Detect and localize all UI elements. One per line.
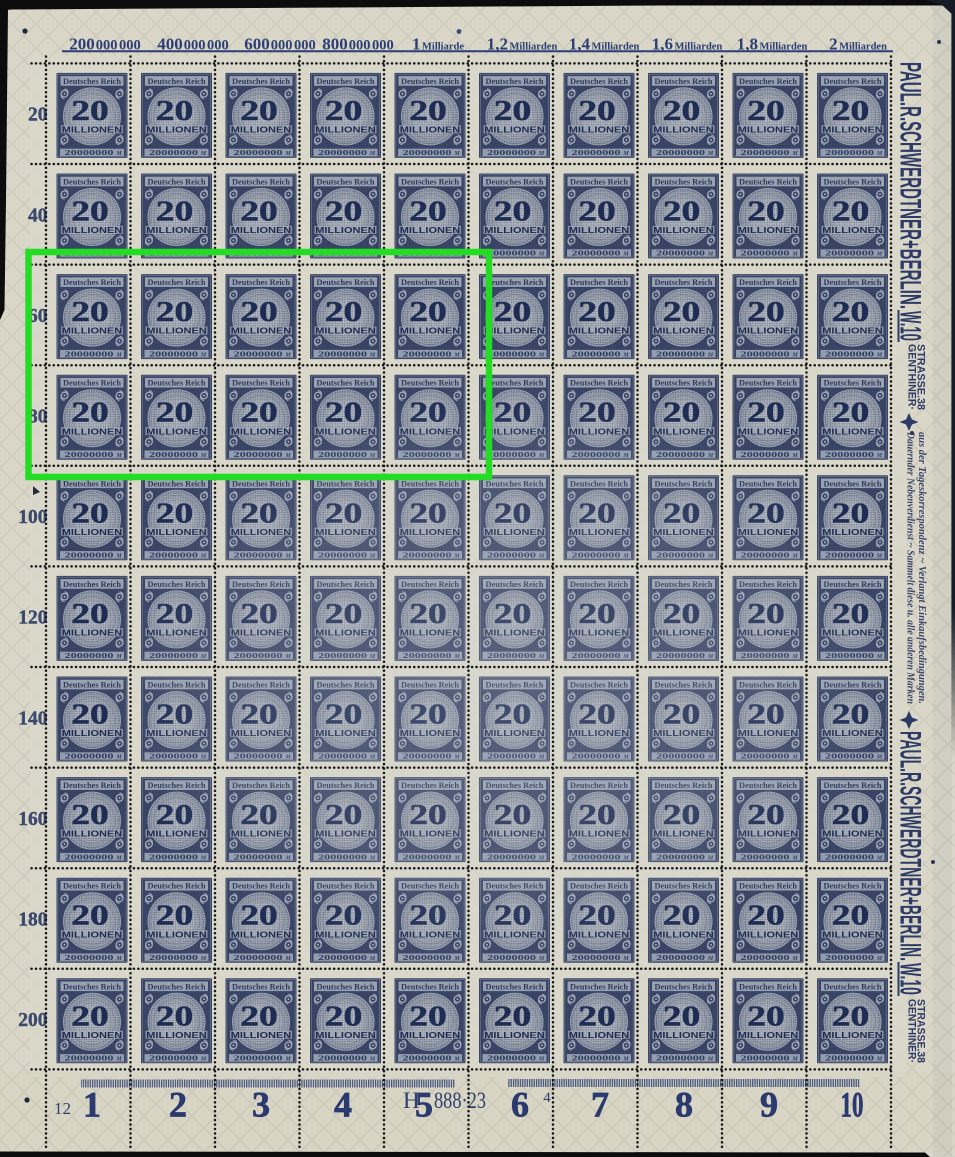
svg-text:12: 12	[54, 1099, 71, 1118]
svg-text:100: 100	[18, 507, 47, 528]
svg-text:20: 20	[28, 105, 48, 126]
svg-text:120: 120	[18, 608, 47, 629]
svg-text:6: 6	[511, 1085, 529, 1125]
svg-text:1: 1	[83, 1085, 101, 1125]
svg-text:H: H	[403, 1088, 420, 1113]
svg-text:STRASSE.38: STRASSE.38	[915, 344, 927, 410]
svg-text:160: 160	[18, 809, 47, 830]
svg-text:200: 200	[18, 1010, 47, 1031]
svg-text:aus der Tageskorrespondenz ~ V: aus der Tageskorrespondenz ~ Verlangt Ei…	[916, 432, 928, 704]
svg-text:180: 180	[18, 910, 47, 931]
svg-text:10: 10	[841, 1085, 864, 1125]
svg-text:Dauernder Nebenverdienst ~ Sam: Dauernder Nebenverdienst ~ Sammelt diese…	[905, 431, 917, 704]
svg-text:PAUL.R.SCHWERDTNER+BERLIN.: PAUL.R.SCHWERDTNER+BERLIN.	[894, 731, 927, 961]
svg-text:9: 9	[760, 1085, 778, 1125]
svg-text:888·23: 888·23	[434, 1088, 486, 1113]
svg-text:140: 140	[18, 708, 47, 729]
svg-text:STRASSE.38: STRASSE.38	[915, 999, 927, 1063]
svg-text:4: 4	[334, 1085, 352, 1125]
svg-text:40: 40	[28, 205, 48, 226]
svg-text:PAUL.R.SCHWERDTNER+BERLIN.: PAUL.R.SCHWERDTNER+BERLIN.	[894, 62, 927, 309]
svg-text:3: 3	[252, 1085, 270, 1125]
svg-text:8: 8	[675, 1085, 693, 1125]
svg-text:2: 2	[169, 1085, 187, 1125]
svg-text:7: 7	[591, 1085, 609, 1125]
svg-text:4: 4	[543, 1090, 551, 1106]
